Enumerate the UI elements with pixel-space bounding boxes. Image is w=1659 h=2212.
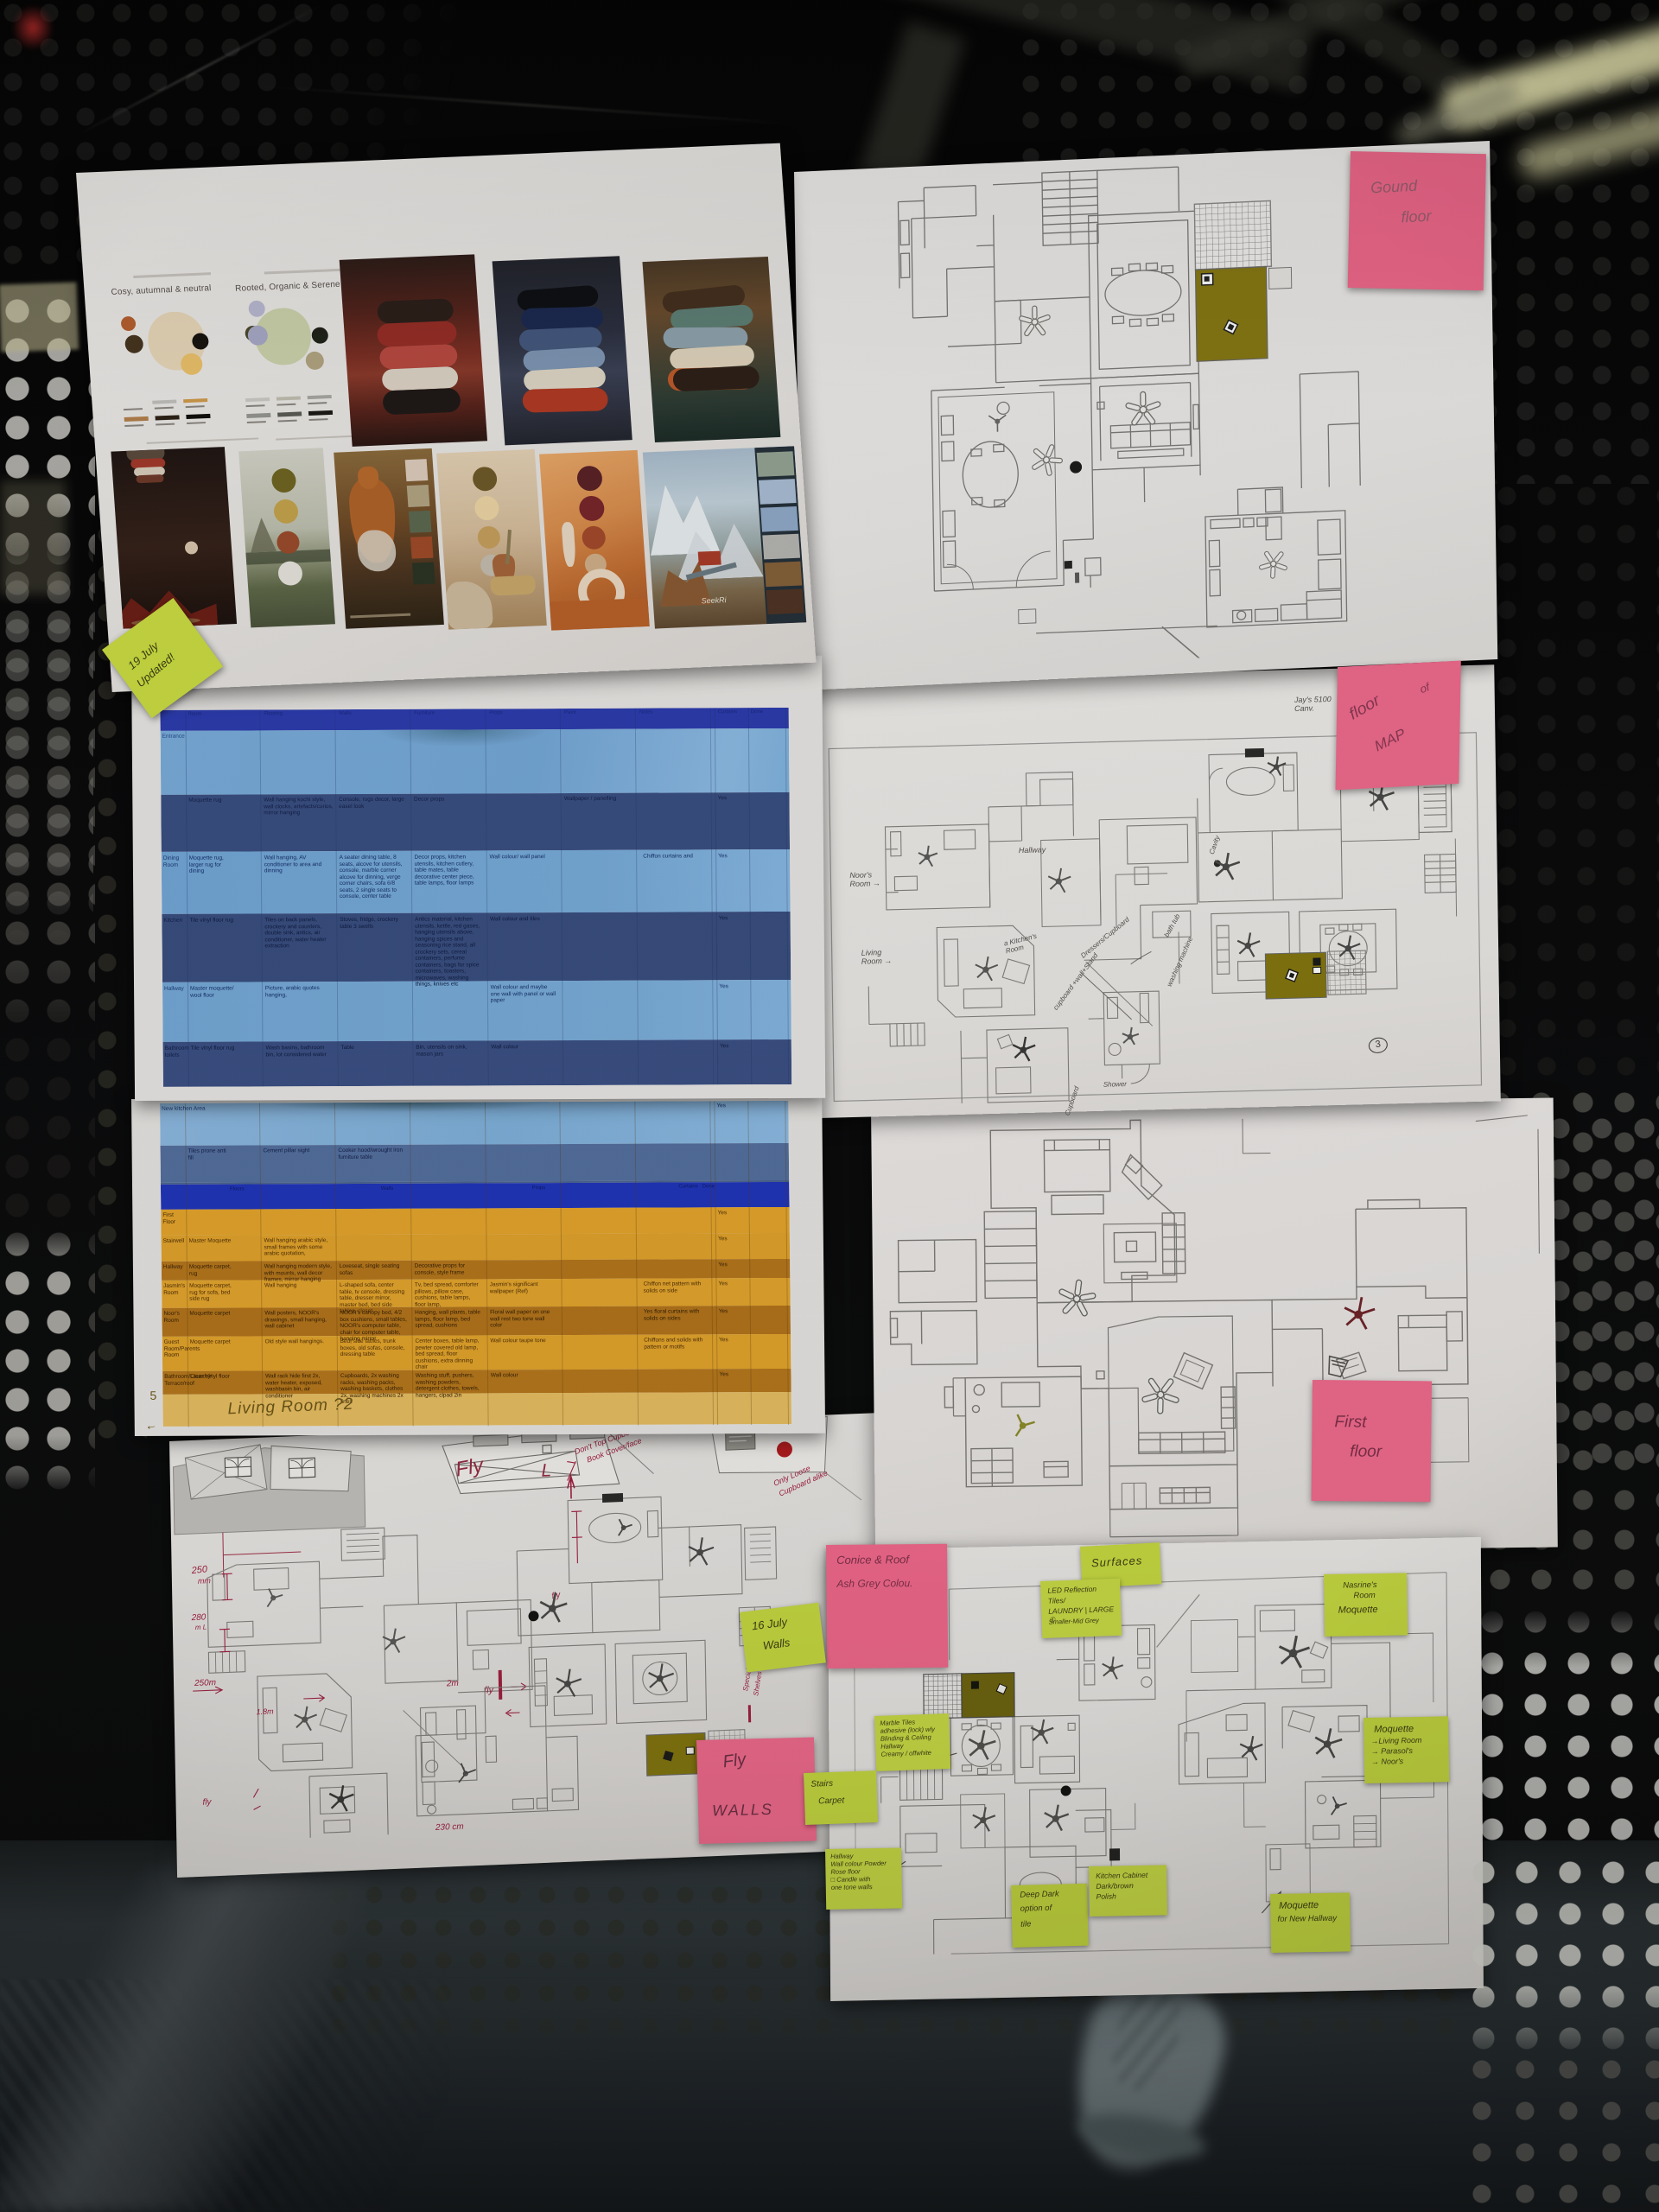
svg-text:230 cm: 230 cm xyxy=(435,1822,464,1833)
svg-text:2m: 2m xyxy=(446,1679,459,1689)
svg-text:fly: fly xyxy=(202,1797,212,1807)
svg-text:m L: m L xyxy=(195,1623,207,1631)
svg-text:250m: 250m xyxy=(194,1678,216,1688)
svg-text:L: L xyxy=(541,1460,551,1480)
svg-text:1.8m: 1.8m xyxy=(257,1707,275,1716)
svg-text:250: 250 xyxy=(190,1564,208,1576)
svg-text:fly: fly xyxy=(484,1685,495,1695)
svg-text:Shelves: Shelves xyxy=(752,1671,763,1696)
svg-text:280: 280 xyxy=(191,1612,207,1623)
svg-text:mm: mm xyxy=(198,1576,212,1586)
svg-text:fly: fly xyxy=(551,1590,563,1601)
